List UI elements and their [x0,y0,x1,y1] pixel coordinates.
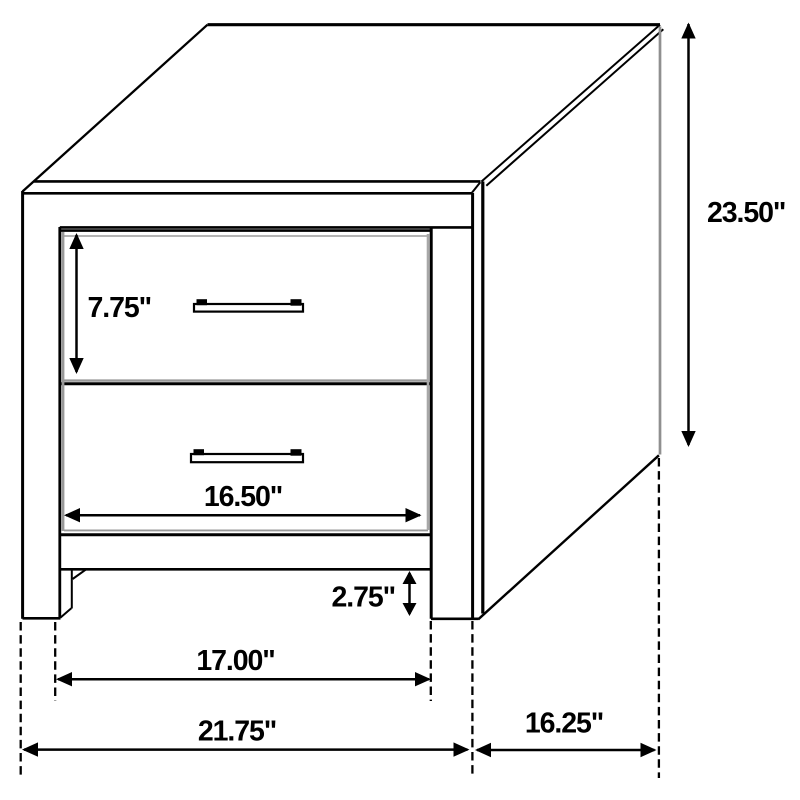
svg-text:16.25": 16.25" [525,708,603,740]
svg-text:7.75": 7.75" [88,292,151,324]
svg-text:23.50": 23.50" [707,197,785,229]
svg-text:21.75": 21.75" [198,716,276,748]
svg-text:16.50": 16.50" [204,481,282,513]
svg-text:2.75": 2.75" [332,582,395,614]
svg-text:17.00": 17.00" [196,645,274,677]
